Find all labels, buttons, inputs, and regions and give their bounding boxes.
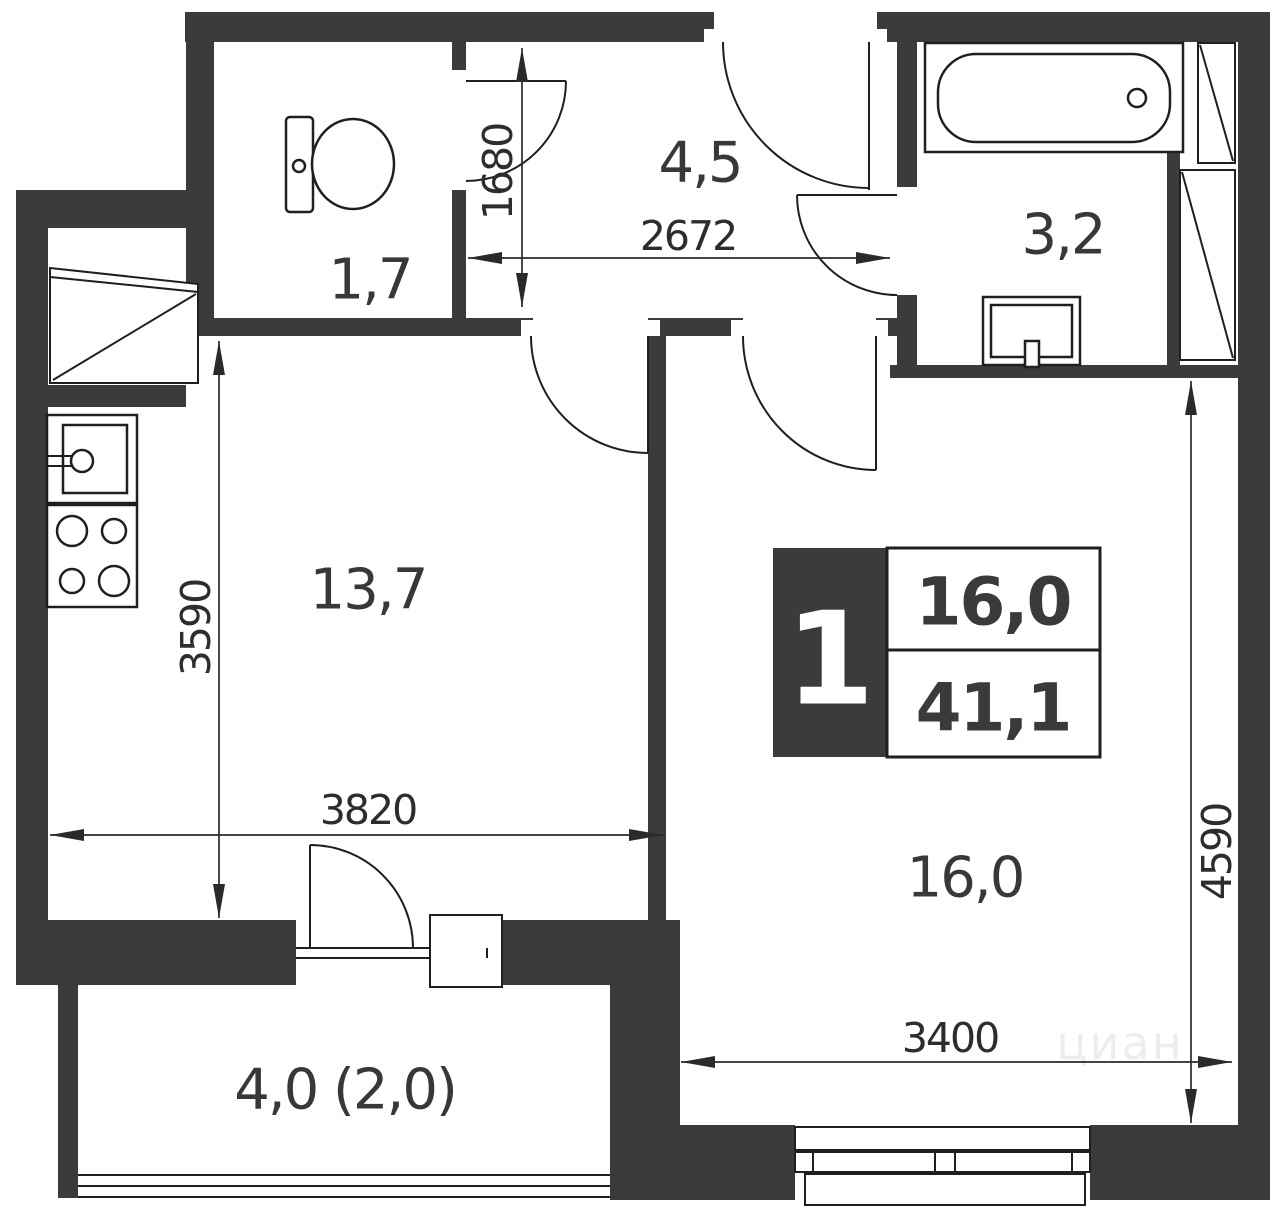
jamb-cap	[648, 320, 660, 336]
jamb-cap	[521, 320, 533, 336]
wall-hall-bottom-left	[186, 318, 533, 336]
toilet-icon	[286, 117, 394, 212]
wall-top-right	[877, 12, 1270, 42]
dimension-1680: 1680	[474, 48, 528, 307]
dimension-3590: 3590	[172, 341, 225, 918]
wall-top-left	[185, 12, 714, 42]
dimension-4590: 4590	[1185, 381, 1241, 1123]
room-door	[743, 336, 876, 470]
jamb-cap	[452, 180, 466, 190]
badge-total-area: 41,1	[916, 670, 1071, 747]
dimension-3820: 3820	[50, 786, 663, 841]
wall-hall-bottom-mid	[648, 318, 743, 336]
wall-kitchen-bottom-left	[16, 920, 296, 985]
floor-plan-drawing: 1680 2672 3590 3820 4590 3400 1,7 4,5 3,…	[0, 0, 1280, 1210]
jamb-cap	[897, 285, 917, 295]
room-window-inner	[795, 1127, 1090, 1150]
balcony-door	[310, 845, 413, 948]
jamb-cap	[877, 29, 887, 42]
label-bathroom-area: 3,2	[1021, 203, 1104, 268]
dim-label-3590: 3590	[172, 580, 220, 676]
dimension-2672: 2672	[468, 212, 890, 264]
badge-rooms-count: 1	[785, 586, 874, 735]
bathroom-door	[797, 195, 897, 295]
wall-room-bottom-right	[1090, 1125, 1270, 1200]
badge-living-area: 16,0	[916, 564, 1071, 641]
room-window-sill	[805, 1174, 1085, 1205]
kitchen-balcony-window	[430, 915, 502, 987]
jamb-cap	[876, 320, 888, 336]
label-balcony-area: 4,0 (2,0)	[234, 1058, 456, 1123]
dim-label-2672: 2672	[640, 212, 736, 260]
watermark: циан	[1056, 1016, 1183, 1070]
jamb-cap	[897, 187, 917, 197]
bathroom-sink-icon	[983, 297, 1080, 367]
entrance-door	[723, 42, 869, 190]
bathtub-icon	[925, 43, 1183, 152]
wall-toilet-right-lower	[452, 180, 466, 336]
dim-label-1680: 1680	[474, 124, 522, 220]
wall-shaft-bottom-band	[48, 385, 186, 407]
apartment-badge: 1 16,0 41,1	[773, 548, 1100, 757]
room-window-frame	[795, 1152, 1090, 1172]
kitchen-door	[531, 336, 648, 453]
jamb-cap	[452, 70, 466, 80]
wall-balcony-right-chunk	[610, 985, 680, 1200]
wall-bath-right	[1167, 152, 1180, 365]
kitchen-sink-icon	[47, 415, 137, 503]
wall-left-outer	[16, 228, 48, 985]
label-room-area: 16,0	[907, 846, 1024, 911]
wall-notch-top-left	[16, 190, 214, 228]
label-hallway-area: 4,5	[658, 131, 741, 196]
dim-label-3820: 3820	[320, 786, 416, 834]
label-kitchen-area: 13,7	[310, 558, 427, 623]
stove-icon	[47, 505, 137, 607]
wall-right-outer	[1238, 12, 1270, 1200]
floor-plan: 1680 2672 3590 3820 4590 3400 1,7 4,5 3,…	[0, 0, 1280, 1210]
jamb-cap	[731, 320, 743, 336]
wall-room-bottom-left	[680, 1125, 795, 1200]
jamb-cap	[704, 29, 714, 42]
dim-label-3400: 3400	[902, 1014, 998, 1062]
wall-bath-left-upper	[897, 42, 917, 187]
wall-bath-bottom	[890, 365, 1270, 378]
wall-partition-kitchen-room	[648, 336, 666, 920]
wall-balcony-left	[58, 985, 78, 1198]
label-toilet-area: 1,7	[328, 248, 411, 313]
dim-label-4590: 4590	[1193, 804, 1241, 900]
wall-kitchen-bottom-right	[502, 920, 680, 985]
